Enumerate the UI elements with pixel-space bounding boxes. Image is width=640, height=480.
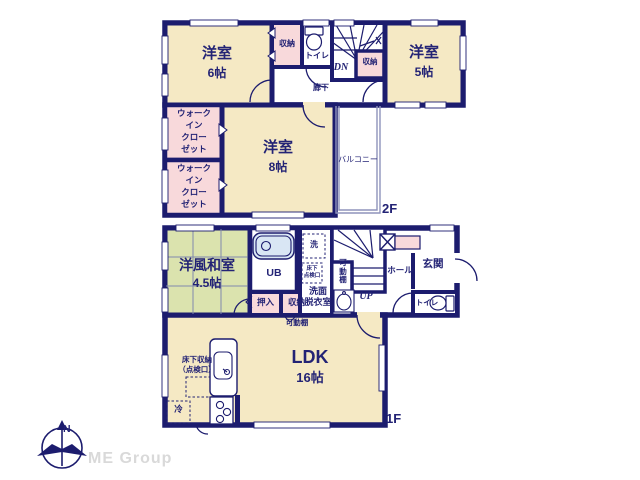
wic2-line: ウォーク [167, 162, 221, 174]
entrance-counter-x [380, 234, 395, 250]
hall-label: ホール [384, 266, 416, 275]
floor2-label: 2F [382, 202, 397, 216]
room-yoshitsu6-label: 洋室 [187, 46, 247, 63]
toilet-icon-2f [305, 27, 323, 50]
room-yoshitsu-5 [385, 23, 463, 105]
room-yoshitsu-6 [165, 23, 272, 105]
wic1-line: クロー [167, 131, 221, 143]
walk-in-closet1-label: ウォーク イン クロー ゼット [167, 107, 221, 155]
laundry-label: 洗 [303, 241, 325, 250]
movable-shelf-stairs-label: 可動棚 [338, 259, 348, 285]
ufs-line: （点検口） [172, 365, 222, 375]
wic1-line: ウォーク [167, 107, 221, 119]
movable-shelf-ldk-label: 可動棚 [281, 319, 313, 327]
room-yoshitsu8-size: 8帖 [253, 161, 303, 174]
room-yoshitsu5-size: 5帖 [399, 66, 449, 79]
hatch-line: 点検口 [302, 273, 322, 280]
washroom-line: 洗面 [296, 286, 340, 297]
floorplan-canvas: 洋室 6帖 収納 トイレ DN 収納 洋室 5帖 廊下 ウォーク イン クロー … [0, 0, 640, 480]
door-opening [303, 102, 325, 108]
wic2-line: クロー [167, 186, 221, 198]
room-yoshitsu5-label: 洋室 [394, 45, 454, 62]
kitchen-wall-stub [235, 395, 240, 425]
balcony-label: バルコニー [336, 156, 380, 165]
entrance-opening [453, 253, 461, 283]
oshiire-label: 押入 [250, 298, 281, 307]
refrigerator-label: 冷 [167, 405, 190, 414]
walk-in-closet2-label: ウォーク イン クロー ゼット [167, 162, 221, 210]
wic1-line: イン [167, 119, 221, 131]
company-logo: ME Group [88, 450, 172, 468]
toilet-2f-label: トイレ [302, 52, 332, 61]
compass-north-label: N [63, 424, 71, 436]
ufs-line: 床下収納 [172, 355, 222, 365]
underfloor-hatch-label: 床下 点検口 [302, 266, 322, 280]
wic2-line: イン [167, 174, 221, 186]
room-yoshitsu6-size: 6帖 [192, 67, 242, 80]
closet-2f-mid-label: 収納 [356, 58, 384, 66]
stairs-dn-label: DN [331, 62, 351, 73]
underfloor-storage-label: 床下収納 （点検口） [172, 355, 222, 374]
stove-icon [210, 397, 233, 424]
closet-2f-top-label: 収納 [272, 40, 302, 49]
room-yoshitsu8-label: 洋室 [248, 140, 308, 157]
unit-bath-label: UB [252, 268, 296, 280]
compass-north-icon [37, 420, 87, 468]
wic2-line: ゼット [167, 198, 221, 210]
shoe-cabinet [395, 236, 420, 249]
shuno-1f-label: 収納 [281, 298, 312, 307]
room-washitsu-label: 洋風和室 [172, 258, 242, 273]
room-washitsu-size: 4.5帖 [182, 277, 232, 290]
bathtub-icon [253, 233, 294, 259]
entrance-label: 玄関 [417, 259, 449, 271]
room-ldk-size: 16帖 [285, 371, 335, 385]
floorplan-drawing [0, 0, 640, 480]
floor1-label: 1F [386, 412, 401, 426]
toilet-1f-label: トイレ [414, 299, 440, 307]
wic1-line: ゼット [167, 143, 221, 155]
hatch-line: 床下 [302, 266, 322, 273]
stairs-up-label: UP [355, 291, 377, 302]
hallway-label: 廊下 [306, 84, 336, 93]
room-ldk-label: LDK [280, 348, 340, 368]
door-opening [357, 312, 380, 318]
